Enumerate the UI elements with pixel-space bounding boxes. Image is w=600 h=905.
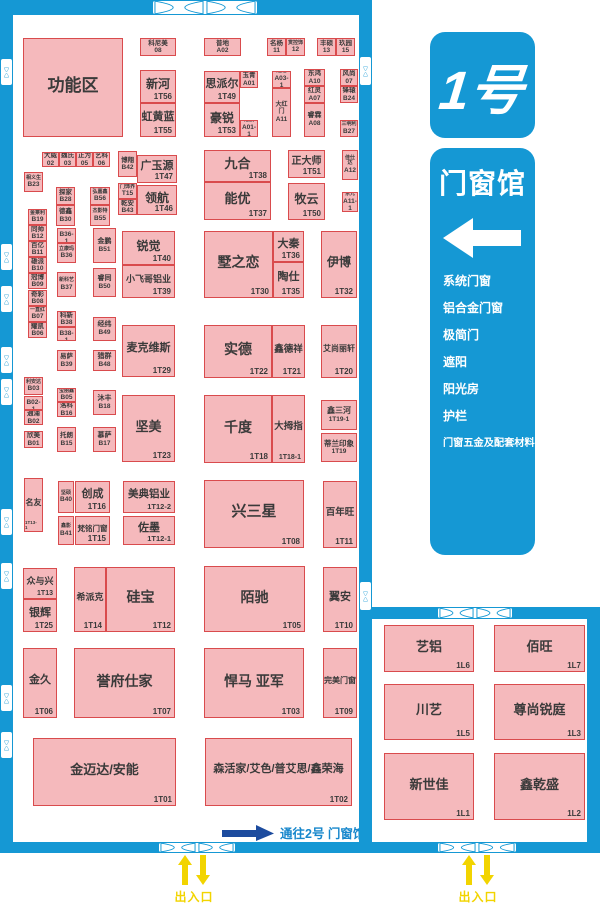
booth: 百亿B11 [28,241,47,257]
booth: 赵越A03-1 [272,71,291,88]
booth: 东元A11-1 [342,192,358,212]
door-symbol [0,508,13,536]
hall-info-panel: 门窗馆 系统门窗铝合金门窗极简门遮阳阳光房护栏门窗五金及配套材料 [430,148,535,555]
booth-code: 05 [81,160,88,167]
booth-code: 08 [154,47,161,54]
booth-code: 1L3 [567,729,581,738]
booth: 小飞哥铝业1T39 [122,265,175,298]
booth: 陌驰1T05 [204,566,305,632]
booth-code: 12 [292,46,299,53]
booth-code: A03-1 [273,75,290,88]
booth: 德鑫B30 [56,205,75,226]
door-symbol [359,581,372,611]
booth-code: 1T55 [154,126,172,135]
booth: 千度1T18 [204,395,272,463]
booth-name: 硅宝 [127,590,155,605]
booth-code: B24 [343,95,355,102]
booth-name: 猎群 [98,353,112,361]
up-down-arrows-icon [461,854,495,887]
booth: 睿同B50 [93,268,116,297]
booth-name: 普地 [216,40,229,47]
booth: 丰硕13 [317,38,336,56]
booth: 魏氏03 [59,152,76,167]
door-symbol [0,731,13,759]
booth-code: A11-1 [343,198,357,212]
booth-name: 玖园 [339,40,352,47]
booth: 森活家/艾色/普艾思/鑫荣海1T02 [205,738,352,806]
booth: 誉府仕家1T07 [74,648,175,718]
booth-name: 同帅 [31,226,44,233]
booth-code: B43 [122,207,134,214]
booth: 冠航A01-1 [240,120,258,137]
booth-name: 功能区 [48,77,99,95]
booth: 新科艺B37 [57,272,76,297]
booth: 科尼美08 [140,38,176,56]
booth: 经纬B49 [93,317,116,341]
booth-code: B40 [60,496,72,503]
booth-code: 1T25 [35,621,53,630]
booth-name: 伊博 [327,256,351,269]
booth-code: B11 [32,249,44,256]
booth-code: B06 [32,330,44,337]
door-symbol [0,58,13,86]
booth-code: 02 [47,160,54,167]
floorplan: 1号 门窗馆 系统门窗铝合金门窗极简门遮阳阳光房护栏门窗五金及配套材料 通往2号… [0,0,600,905]
booth-code: 1T13 [37,590,53,597]
booth: 鑫乾盛1L2 [494,753,585,820]
booth-name: 千度 [224,420,252,435]
booth: 创成1T16 [75,481,110,513]
wall [359,10,372,852]
booth: 睿霖A08 [304,103,325,137]
booth-name: 探家 [59,189,72,196]
booth-name: 金迈达/安能 [70,763,139,777]
booth: 相义生B23 [24,172,43,192]
booth-code: 1T09 [335,707,353,716]
booth: 托朗B15 [57,427,76,452]
booth-code: 1T23 [153,451,171,460]
category-item: 阳光房 [443,376,535,403]
booth-name: 雄派 [31,258,44,265]
booth-name: 豪锐 [210,112,234,125]
booth-code: 1T56 [154,92,172,101]
booth-name: 正为 [78,152,91,159]
booth: 冠博B09 [28,273,47,289]
booth-name: 佰旺 [526,640,552,654]
booth-code: B51 [99,246,111,253]
booth-code: 1T30 [251,287,269,296]
booth: 名杨11 [267,38,286,56]
booth-code: 1T16 [88,502,106,511]
booth-name: 大拇指 [274,422,303,432]
booth: 梵铭门窗1T15 [75,516,110,545]
booth-name: 东鸿 [308,70,321,77]
booth-code: 03 [64,160,71,167]
booth: 弘嘉鑫B56 [90,187,110,205]
booth-name: 冠博 [31,274,44,281]
booth: 玖园15 [336,38,355,56]
booth-code: B39 [61,361,73,368]
booth-code: 11 [273,47,280,54]
booth-code: 1T15 [88,534,106,543]
booth: 大威02 [42,152,59,167]
booth-code: A01-1 [241,124,257,137]
booth-code: B19 [32,216,44,223]
hall-number: 1号 [436,46,528,125]
booth-name: 思派尔 [206,79,239,91]
door-symbol [359,56,372,86]
booth-name: 百亿 [31,242,44,249]
booth-name: 魏氏 [61,152,74,159]
booth: 正大师1T51 [288,150,325,178]
booth: 大拇指1T18-1 [272,395,305,463]
booth-code: B41 [60,530,72,537]
booth-code: 1T18 [250,452,268,461]
booth-code: B02-1 [25,399,42,410]
booth-code: A01 [243,80,255,87]
booth-code: 1T19 [332,448,347,455]
booth-code: 1T39 [153,287,171,296]
booth-code: 1T12 [153,621,171,630]
booth-code: A02 [217,47,229,54]
booth-code: 1L7 [567,661,581,670]
booth-code: 1T36 [282,251,300,260]
booth-code: 1L5 [456,729,470,738]
booth: 科新B38 [57,311,76,327]
booth-code: 1T51 [303,167,321,176]
booth: 鑫三河1T19-1 [321,400,357,430]
booth-code: B38-1 [58,330,75,341]
booth-name: 牧云 [294,193,318,206]
booth-code: 1T53 [218,126,236,135]
booth: 硅宝1T12 [106,567,175,632]
booth-name: 锐觉 [136,240,160,253]
booth-name: 耀凯 [31,323,44,330]
booth-code: 1L2 [567,809,581,818]
booth: 豪锐1T53 [204,103,240,137]
booth-code: 1L1 [456,809,470,818]
booth-name: 陌驰 [241,590,269,605]
booth-name: 墅之恋 [218,255,260,270]
booth-code: A11 [276,116,288,123]
booth: 耀凯B06 [28,322,47,338]
booth-code: 1T46 [155,204,173,213]
booth-code: 1T32 [335,287,353,296]
booth-code: 1T08 [282,537,300,546]
category-item: 门窗五金及配套材料 [443,430,535,457]
booth: 新河1T56 [140,70,176,103]
booth: 探家B28 [56,187,75,205]
booth: 金鹏B51 [93,228,116,263]
hall-number-badge: 1号 [430,32,535,138]
booth-code: B18 [99,403,111,410]
booth: 佰旺1L7 [494,625,585,672]
booth-name: 蒂兰印象 [324,440,354,448]
booth: 尊尚锐庭1L3 [494,684,585,740]
booth-code: B55 [94,215,106,222]
booth-code: B28 [60,196,72,203]
to-hall2-label: 通往2号 门窗馆 [280,823,365,842]
booth: 众与兴1T13 [23,568,57,599]
booth-code: A10 [309,78,321,85]
booth-name: 风尚 [343,70,356,77]
booth-name: 美典铝业 [128,489,170,500]
booth: 风尚07 [340,69,358,86]
booth-name: 艺科 [95,152,108,159]
booth-code: 1T19-1 [329,416,350,423]
booth-name: 完美门窗 [324,677,356,685]
booth-code: B42 [122,164,134,171]
booth-name: 坚美 [135,420,161,434]
booth-code: B56 [94,195,106,202]
booth-code: B27 [343,128,355,135]
booth-code: 1T03 [282,707,300,716]
door-symbol [158,842,236,853]
door-symbol [0,684,13,712]
booth: 三明利B27 [340,120,358,137]
booth: 陶仕1T35 [273,262,304,298]
booth: 艺科06 [93,152,110,167]
booth-code: 1T07 [153,707,171,716]
booth-name: 佳仕达 [343,156,357,167]
up-down-arrows-icon [177,854,211,887]
booth-code: 1T13-1 [25,520,39,530]
booth: 坚硕B40 [58,481,74,513]
booth: 功能区 [23,38,123,137]
booth: 金久1T06 [23,648,57,718]
booth-code: T15 [122,190,133,197]
booth-name: 玉青 [243,72,256,79]
booth: 兴三星1T08 [204,480,304,548]
booth: 实德1T22 [204,325,272,378]
door-symbol [437,607,513,619]
booth: 佐墨1T12-1 [123,516,175,545]
booth: 正为05 [76,152,93,167]
booth: 锐觉1T40 [122,231,175,265]
booth: 墅之恋1T30 [204,231,273,298]
booth: 一直红B07 [28,306,47,322]
booth-name: 艺铝 [416,640,442,654]
entrance-exit-right: 出入口 [446,854,510,905]
booth-code: 1T12-1 [147,534,171,543]
booth-code: B23 [28,181,40,188]
booth: 百年旺1T11 [323,481,357,548]
booth: 九合1T38 [204,150,271,182]
booth-code: 13 [323,47,330,54]
booth-code: 1T47 [155,172,173,181]
booth-code: 1T22 [250,367,268,376]
booth-code: B05 [61,394,73,401]
booth-code: B36-1 [58,231,75,243]
booth-code: B07 [32,313,44,320]
booth: 完美门窗1T09 [323,648,357,718]
booth-name: 名杨 [270,40,283,47]
booth: 金莱利B19 [28,209,47,225]
booth: 普地A02 [204,38,241,56]
booth-name: 新河 [146,78,170,91]
booth: 易萨B39 [57,350,76,371]
booth-code: B01 [28,440,40,447]
booth-name: 百年旺 [326,508,355,518]
booth-code: B15 [61,440,73,447]
booth-name: 希派克 [76,593,103,602]
booth: 新世佳1L1 [384,753,474,820]
booth: 宝丽鑫B05 [57,388,76,402]
booth: 伊博1T32 [321,231,357,298]
booth-code: A08 [309,120,321,127]
booth: 川艺1L5 [384,684,474,740]
booth-name: 陶仕 [278,272,300,284]
booth-name: 科新 [60,312,73,319]
booth-code: 1T14 [84,621,102,630]
booth: 大红门A11 [272,88,291,137]
booth-code: 1T18-1 [279,454,301,461]
wall [587,607,600,853]
entrance-exit-label: 出入口 [458,888,497,905]
booth-name: 洛科 [60,402,73,409]
booth-name: 尊尚锐庭 [513,703,565,717]
booth-name: 麦克维斯 [127,343,171,355]
booth-code: 1T11 [335,537,353,546]
booth-code: 1L6 [456,661,470,670]
booth: 领航1T46 [137,185,177,215]
booth-name: 慕萨 [98,432,112,440]
hall-name: 门窗馆 [430,162,535,202]
booth-code: 1T38 [249,171,267,180]
booth-name: 众与兴 [26,577,53,586]
booth-name: 睿霖 [308,112,322,120]
booth-name: 翼安 [329,592,351,604]
booth-code: 07 [345,78,352,85]
booth-name: 新世佳 [409,778,448,792]
booth-code: B12 [32,233,44,240]
booth-code: B38 [61,319,73,326]
booth-code: 1T01 [154,795,172,804]
door-symbol [0,243,13,271]
booth-code: B10 [32,265,44,272]
booth-code: 1T10 [335,621,353,630]
booth-name: 鑫德祥 [274,345,303,355]
booth: 蒂兰印象1T19 [321,433,357,462]
booth-name: 锋辕 [343,87,356,94]
booth: 锋辕B24 [340,86,358,103]
booth: 立康玛B36 [57,243,76,263]
booth-code: 1T35 [282,287,300,296]
booth-name: 易萨 [60,353,73,360]
booth: 艾尚丽轩1T20 [321,325,357,378]
booth-name: 金久 [29,675,51,687]
booth: 佳仕达A12 [342,150,358,180]
booth-code: 1T49 [218,92,236,101]
booth-code: 1T29 [153,366,171,375]
booth-name: 川艺 [416,703,442,717]
booth-code: A07 [309,95,321,102]
booth-name: 誉府仕家 [97,674,153,689]
booth-name: 鑫三河 [327,407,351,416]
booth-name: 博翔 [121,157,134,164]
booth: 奇彩B08 [28,290,47,306]
booth-name: 悍马 亚军 [224,674,284,689]
booth: 牧云1T50 [288,183,325,220]
booth-name: 红灵 [308,87,321,94]
booth-code: B17 [99,440,111,447]
booth-name: 鑫乾盛 [520,778,559,792]
booth-code: B16 [61,410,73,417]
booth: 雄派B10 [28,257,47,273]
booth: 艺铝1L6 [384,625,474,672]
booth-name: 金鹏 [98,238,112,246]
booth: 同帅B12 [28,225,47,241]
door-symbol [0,285,13,313]
door-symbol [0,378,13,406]
door-symbol [0,562,13,590]
booth-name: 虹黄蓝 [142,112,175,124]
booth-code: B49 [99,329,111,336]
booth: 玉青A01 [240,71,258,88]
booth-name: 奇彩 [31,291,44,298]
booth: 美典铝业1T12-2 [123,481,175,513]
booth-code: B36 [61,252,73,259]
booth: 通浦B02 [24,410,43,425]
booth-name: 乾安 [121,200,134,207]
door-symbol [152,0,258,15]
booth-name: 德鑫 [59,208,72,215]
category-item: 护栏 [443,403,535,430]
booth-name: 通浦 [27,410,40,417]
booth-code: B50 [99,283,111,290]
entrance-exit-left: 出入口 [162,854,226,905]
booth-code: 1T20 [335,367,353,376]
booth-name: 正大师 [292,157,322,168]
booth-name: 能优 [224,192,250,206]
booth-name: 兴三星 [231,504,276,520]
booth-code: B02 [28,418,40,425]
booth: 思派尔1T49 [204,71,240,103]
category-item: 铝合金门窗 [443,295,535,322]
booth-code: B09 [32,281,44,288]
booth: 博翔B42 [118,151,137,177]
booth-name: 托朗 [60,432,73,439]
booth: 猎群B48 [93,350,116,371]
entrance-exit-label: 出入口 [174,888,213,905]
booth-name: 实德 [224,342,252,357]
booth: 东鸿A10 [304,69,325,86]
booth: 银辉1T25 [23,599,57,632]
booth: 洛科B16 [57,402,76,417]
booth: 角园B02-1 [24,396,43,410]
booth: 慕萨B17 [93,427,116,452]
booth: 彬利B36-1 [57,228,76,243]
booth-name: 欣美 [27,432,40,439]
booth-name: 九合 [224,157,250,171]
booth-code: 15 [342,47,349,54]
booth: 门饰界T15 [118,183,137,199]
booth-name: 创成 [82,489,104,501]
booth-name: 丰硕 [320,40,333,47]
booth: 大秦1T36 [273,231,304,262]
door-symbol [437,842,517,853]
booth: 希派克1T14 [74,567,106,632]
booth-code: 1T50 [303,209,321,218]
booth-name: 大秦 [278,239,300,251]
booth: 鑫德祥1T21 [272,325,305,378]
booth-code: 1T21 [283,367,301,376]
booth: 广玉源1T47 [137,155,177,183]
booth: 能优1T37 [204,182,271,220]
category-item: 极简门 [443,322,535,349]
booth: 翼安1T10 [323,567,357,632]
booth: 杰影特B55 [90,205,110,226]
